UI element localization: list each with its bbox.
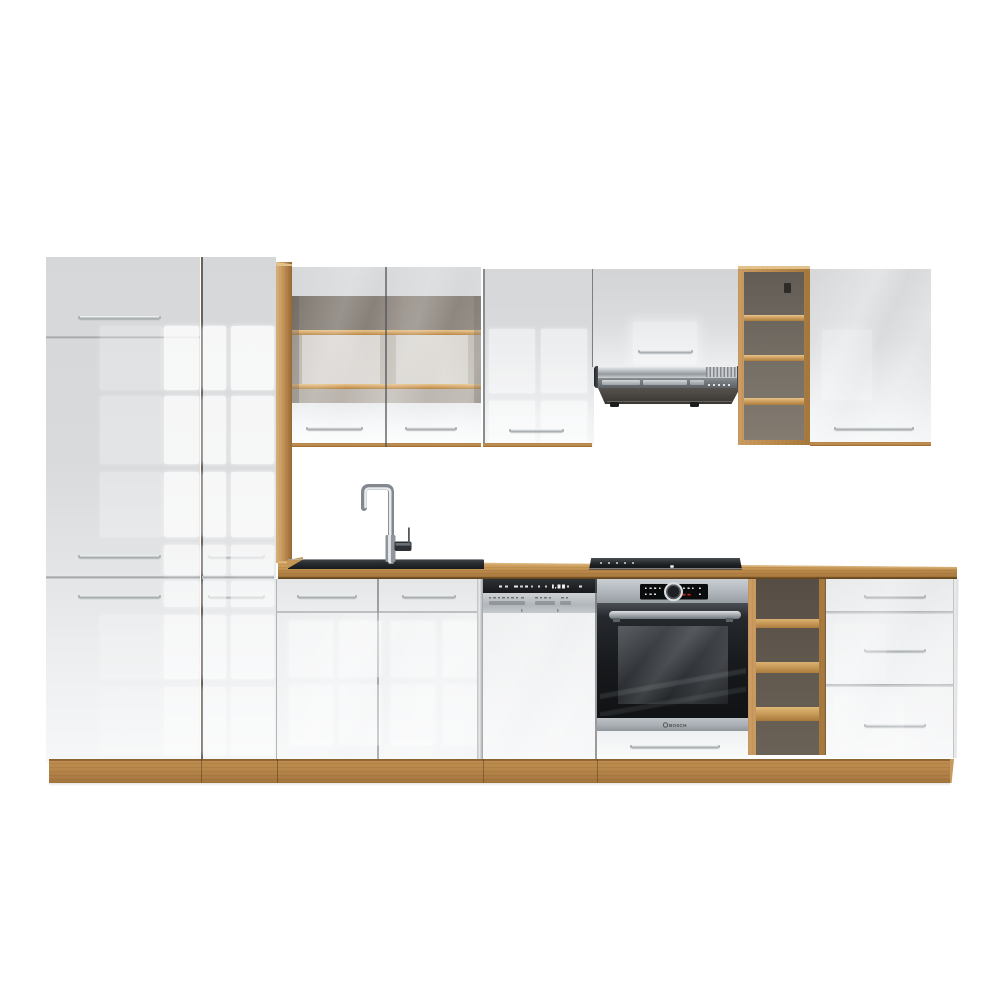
svg-text:BOSCH: BOSCH [669, 723, 687, 728]
